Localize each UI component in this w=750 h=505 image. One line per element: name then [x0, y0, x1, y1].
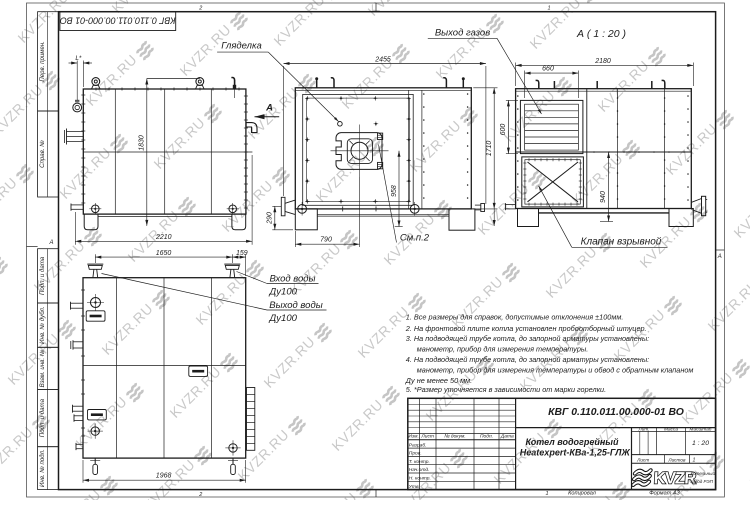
svg-text:5. *Размер уточняется в зависи: 5. *Размер уточняется в зависимости от м…: [406, 385, 606, 394]
svg-text:KVZR.RU: KVZR.RU: [4, 330, 62, 388]
svg-text:159: 159: [236, 250, 248, 257]
svg-text:1. Все размеры для справок, до: 1. Все размеры для справок, допустимые о…: [406, 313, 624, 322]
svg-text:KVZR.RU: KVZR.RU: [500, 87, 558, 145]
svg-text:2210: 2210: [155, 234, 172, 241]
svg-text:Котельный: Котельный: [691, 470, 716, 476]
svg-text:Гляделка: Гляделка: [221, 40, 262, 51]
svg-text:2: 2: [198, 5, 202, 11]
svg-text:2180: 2180: [594, 58, 611, 65]
svg-text:KVZR.RU: KVZR.RU: [542, 243, 600, 301]
svg-text:600: 600: [500, 124, 507, 136]
svg-text:KVZR.RU: KVZR.RU: [218, 177, 276, 235]
svg-text:KVZR.RU: KVZR.RU: [746, 432, 750, 490]
svg-text:Взам. инв. №: Взам. инв. №: [39, 349, 46, 387]
svg-text:Утв.: Утв.: [409, 484, 420, 490]
svg-text:Инв. № подл.: Инв. № подл.: [39, 449, 46, 487]
svg-text:Листов: Листов: [667, 457, 686, 462]
svg-text:Пров.: Пров.: [409, 451, 422, 457]
svg-text:KVZR.RU: KVZR.RU: [98, 300, 156, 358]
svg-text:КВГ 0.110.011.00.000-01 ВО: КВГ 0.110.011.00.000-01 ВО: [60, 15, 176, 25]
svg-text:790: 790: [320, 237, 332, 244]
svg-text:Формат А3: Формат А3: [649, 491, 680, 497]
svg-text:660: 660: [542, 66, 554, 73]
svg-text:Т. контр.: Т. контр.: [409, 459, 430, 465]
svg-text:KVZR.RU: KVZR.RU: [108, 0, 166, 16]
svg-text:Клапан взрывной: Клапан взрывной: [581, 237, 662, 248]
svg-text:1: 1: [547, 5, 550, 11]
svg-text:Лист: Лист: [420, 434, 434, 440]
svg-text:А ( 1 : 20 ): А ( 1 : 20 ): [576, 28, 626, 40]
svg-text:Масштаб: Масштаб: [690, 427, 712, 432]
svg-text:KVZR.RU: KVZR.RU: [82, 51, 140, 109]
svg-text:1 : 20: 1 : 20: [692, 440, 709, 447]
svg-text:KVZR.RU: KVZR.RU: [192, 270, 250, 328]
svg-text:А: А: [48, 240, 53, 246]
svg-text:Ду100: Ду100: [269, 313, 298, 324]
svg-text:А: А: [265, 103, 273, 114]
svg-text:Котел водогрейный: Котел водогрейный: [526, 437, 619, 447]
svg-text:940: 940: [600, 191, 607, 203]
svg-text:Масса: Масса: [664, 427, 678, 432]
svg-text:958: 958: [391, 185, 398, 197]
svg-text:KVZR.RU: KVZR.RU: [328, 396, 386, 454]
svg-text:Ду не менее 50 мм.: Ду не менее 50 мм.: [405, 376, 472, 385]
svg-text:KVZR.RU: KVZR.RU: [526, 0, 584, 52]
svg-text:3. На подводящей трубе котла,: 3. На подводящей трубе котла, до запорно…: [406, 334, 649, 343]
svg-text:290: 290: [267, 212, 274, 225]
svg-text:KVZR.RU: KVZR.RU: [704, 276, 750, 334]
svg-text:KVZR.RU: KVZR.RU: [422, 366, 480, 424]
svg-text:КВГ 0.110.011.00.000-01 ВО: КВГ 0.110.011.00.000-01 ВО: [548, 407, 684, 418]
svg-text:Лист: Лист: [636, 457, 649, 462]
svg-text:2455: 2455: [374, 56, 391, 63]
svg-text:Нач.отд.: Нач.отд.: [409, 467, 430, 473]
svg-text:Лит.: Лит.: [638, 427, 650, 432]
svg-text:KVZR.RU: KVZR.RU: [234, 426, 292, 484]
svg-text:KVZR.RU: KVZR.RU: [0, 174, 20, 232]
svg-text:KVZR.RU: KVZR.RU: [270, 0, 328, 49]
svg-text:L*: L*: [75, 55, 82, 62]
svg-text:А: А: [717, 254, 722, 260]
svg-text:Дата: Дата: [500, 434, 514, 440]
svg-text:KVZR.RU: KVZR.RU: [46, 486, 104, 500]
svg-text:KVZR.RU: KVZR.RU: [302, 489, 360, 500]
svg-text:Выход газов: Выход газов: [435, 27, 490, 38]
svg-text:Подп. и дата: Подп. и дата: [39, 398, 46, 437]
svg-text:KVZR.RU: KVZR.RU: [0, 81, 46, 139]
svg-text:2: 2: [198, 492, 202, 498]
svg-text:4. На подводящей трубе котла,: 4. На подводящей трубе котла, до запорно…: [406, 355, 649, 364]
svg-text:Выход воды: Выход воды: [269, 300, 322, 311]
svg-text:Перв. примен.: Перв. примен.: [39, 41, 46, 82]
svg-text:манометр, прибор для измерения: манометр, прибор для измерения температу…: [417, 366, 694, 375]
svg-text:KVZR.RU: KVZR.RU: [56, 144, 114, 202]
svg-text:KVZR.RU: KVZR.RU: [730, 183, 750, 241]
svg-text:1: 1: [545, 491, 548, 497]
svg-text:2. На фронтовой плите котла ус: 2. На фронтовой плите котла установлен п…: [405, 324, 647, 333]
svg-text:См.п.2: См.п.2: [400, 233, 430, 244]
svg-text:Инв. № дубл.: Инв. № дубл.: [39, 306, 46, 343]
svg-text:Вход воды: Вход воды: [269, 273, 315, 284]
svg-text:Разраб.: Разраб.: [409, 442, 427, 448]
svg-text:Heatexpert-КВа-1,25-ГЛЖ: Heatexpert-КВа-1,25-ГЛЖ: [520, 448, 631, 458]
svg-text:1968: 1968: [156, 473, 172, 480]
svg-text:KVZR.RU: KVZR.RU: [72, 393, 130, 451]
svg-text:KVZR.RU: KVZR.RU: [244, 84, 302, 142]
svg-text:1830: 1830: [139, 135, 146, 151]
svg-text:1650: 1650: [156, 250, 172, 257]
svg-text:Справ. №: Справ. №: [39, 140, 46, 168]
svg-text:KVZR.RU: KVZR.RU: [354, 303, 412, 361]
svg-text:KVZR.RU: KVZR.RU: [0, 423, 36, 481]
svg-text:KVZR.RU: KVZR.RU: [406, 117, 464, 175]
svg-text:KVZR.RU: KVZR.RU: [124, 207, 182, 265]
svg-text:Н. контр.: Н. контр.: [409, 476, 431, 482]
svg-text:1: 1: [693, 457, 696, 463]
svg-text:Ду100: Ду100: [269, 287, 298, 298]
svg-text:KVZR.RU: KVZR.RU: [260, 333, 318, 391]
svg-text:KVZR.RU: KVZR.RU: [448, 273, 506, 331]
svg-text:завод РЭП: завод РЭП: [690, 479, 714, 484]
svg-text:манометр, прибор для измерения: манометр, прибор для измерения температу…: [417, 345, 589, 354]
svg-text:KVZR.RU: KVZR.RU: [150, 114, 208, 172]
svg-text:Подп.: Подп.: [480, 434, 493, 440]
svg-text:Подп. и дата: Подп. и дата: [39, 256, 46, 295]
svg-text:№ докум.: № докум.: [444, 434, 466, 440]
svg-text:1710: 1710: [486, 141, 493, 157]
svg-text:KVZR.RU: KVZR.RU: [594, 57, 652, 115]
svg-text:Копировал: Копировал: [568, 491, 597, 497]
svg-text:Изм.: Изм.: [408, 434, 418, 440]
